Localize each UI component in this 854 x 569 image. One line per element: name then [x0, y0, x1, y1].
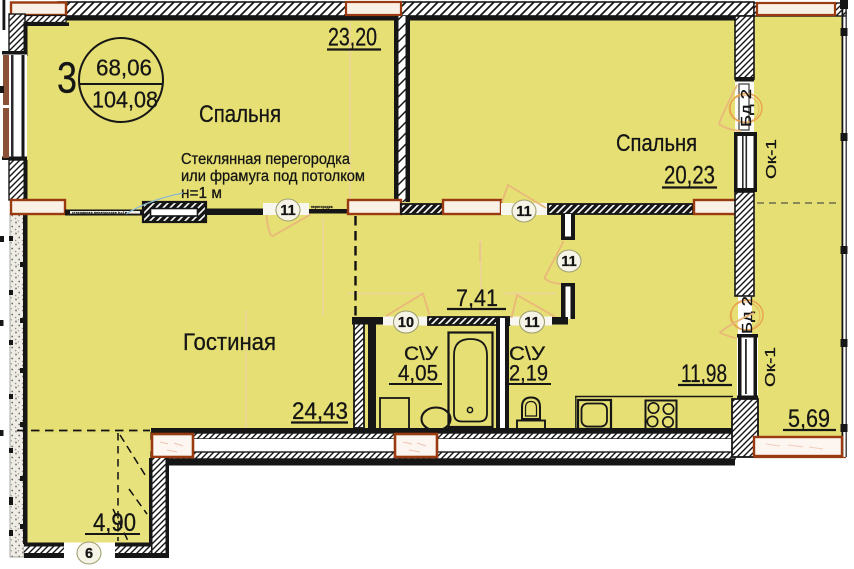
svg-text:20,23: 20,23	[664, 162, 715, 190]
svg-text:2,19: 2,19	[509, 361, 548, 386]
svg-text:Спальня: Спальня	[199, 101, 281, 128]
svg-text:н=1 м: н=1 м	[181, 185, 222, 202]
svg-text:3: 3	[57, 54, 77, 103]
svg-text:104,08: 104,08	[92, 87, 158, 113]
svg-text:Спальня: Спальня	[616, 130, 697, 157]
svg-text:Бд 2: Бд 2	[739, 296, 756, 334]
svg-text:стеклянная перегородка h=1м: стеклянная перегородка h=1м	[72, 211, 127, 215]
svg-text:Ок-1: Ок-1	[762, 347, 779, 387]
svg-text:11: 11	[516, 204, 531, 220]
svg-text:Гостиная: Гостиная	[183, 329, 276, 356]
svg-text:11,98: 11,98	[681, 360, 727, 388]
svg-text:Стеклянная перегородка: Стеклянная перегородка	[181, 151, 350, 168]
svg-text:11: 11	[524, 315, 539, 331]
svg-text:4,05: 4,05	[398, 361, 438, 386]
svg-text:23,20: 23,20	[328, 24, 377, 52]
svg-text:11: 11	[280, 203, 295, 219]
svg-text:Бд 2: Бд 2	[738, 89, 755, 127]
svg-text:10: 10	[398, 315, 414, 331]
svg-text:6: 6	[85, 546, 93, 562]
svg-text:11: 11	[561, 254, 576, 270]
svg-text:24,43: 24,43	[292, 398, 348, 425]
svg-text:Ок-1: Ок-1	[763, 139, 780, 179]
svg-text:4,90: 4,90	[93, 509, 136, 537]
svg-text:перегородка: перегородка	[311, 205, 333, 209]
svg-text:68,06: 68,06	[96, 55, 152, 81]
svg-text:или фрамуга под потолком: или фрамуга под потолком	[181, 168, 365, 185]
svg-text:5,69: 5,69	[788, 405, 830, 433]
